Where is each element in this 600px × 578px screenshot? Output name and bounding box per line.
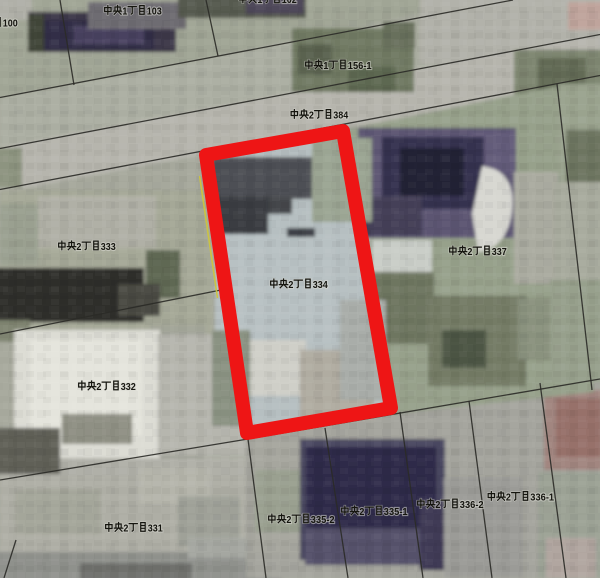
svg-text:2: 2: [359, 507, 364, 518]
svg-text:2: 2: [467, 247, 472, 258]
svg-text:1: 1: [122, 6, 127, 17]
svg-text:2: 2: [286, 515, 291, 526]
svg-text:2: 2: [506, 492, 511, 503]
svg-text:335-2: 335-2: [311, 515, 335, 526]
svg-text:2: 2: [288, 280, 293, 291]
svg-text:336-2: 336-2: [460, 500, 484, 511]
svg-text:103: 103: [147, 6, 162, 17]
svg-text:100: 100: [3, 18, 18, 29]
svg-text:2: 2: [309, 110, 314, 121]
svg-text:156-1: 156-1: [348, 61, 372, 72]
svg-text:2: 2: [435, 500, 440, 511]
svg-text:2: 2: [76, 242, 81, 253]
svg-text:335-1: 335-1: [384, 507, 408, 518]
svg-text:1: 1: [323, 61, 328, 72]
svg-text:2: 2: [123, 523, 128, 534]
svg-text:102: 102: [282, 0, 297, 6]
svg-text:2: 2: [96, 382, 101, 393]
svg-text:333: 333: [101, 242, 116, 253]
svg-text:334: 334: [313, 280, 328, 291]
svg-text:1: 1: [257, 0, 262, 6]
svg-text:337: 337: [492, 247, 507, 258]
svg-text:331: 331: [148, 523, 163, 534]
svg-text:384: 384: [333, 110, 348, 121]
svg-text:336-1: 336-1: [530, 492, 554, 503]
svg-text:332: 332: [121, 382, 136, 393]
